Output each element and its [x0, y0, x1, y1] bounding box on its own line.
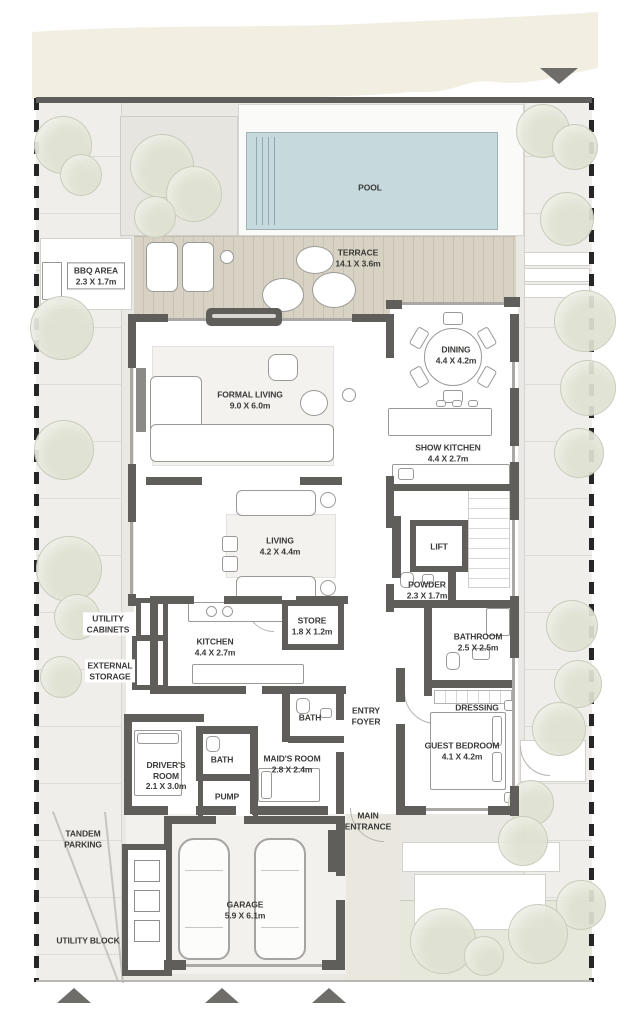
sofa: [236, 490, 316, 516]
room-dims: 4.4 X 2.7m: [415, 453, 480, 464]
room-dims: 4.1 X 4.2m: [425, 751, 500, 762]
toilet: [206, 736, 220, 752]
room-label-lift: LIFT: [430, 542, 448, 553]
wall: [282, 686, 290, 742]
room-dims: 2.1 X 3.0m: [142, 781, 190, 792]
wall: [150, 596, 158, 692]
room-label-powder: POWDER2.3 X 1.7m: [407, 579, 448, 600]
room-dims: 2.3 X 1.7m: [70, 276, 122, 287]
wall: [224, 596, 282, 604]
side-table: [222, 556, 238, 572]
room-name: UTILITY BLOCK: [56, 936, 119, 946]
room-label-entry-foyer: ENTRY FOYER: [349, 705, 383, 726]
garage-door: [186, 964, 322, 967]
label-external-storage: EXTERNAL STORAGE: [85, 659, 135, 682]
stool: [468, 400, 478, 407]
kitchen-counter: [192, 664, 304, 684]
tree: [560, 360, 616, 416]
room-dims: 14.1 X 3.6m: [335, 258, 380, 269]
room-name: SHOW KITCHEN: [415, 442, 480, 452]
pool-side-step: [524, 252, 590, 266]
room-name: DINING: [441, 344, 470, 354]
room-dims: 4.4 X 4.2m: [436, 355, 477, 366]
room-label-pump: PUMP: [215, 792, 239, 803]
cooktop-burner: [206, 606, 217, 617]
pool-side-step: [524, 268, 590, 282]
tree: [540, 192, 594, 246]
room-name: BBQ AREA: [74, 265, 118, 275]
cooktop-burner: [222, 606, 233, 617]
window-glass: [512, 446, 515, 462]
tree: [554, 428, 604, 478]
lounge-chair: [146, 242, 178, 292]
window-glass: [282, 318, 354, 321]
dining-chair: [443, 312, 463, 325]
room-dims: 2.8 X 2.4m: [263, 764, 320, 775]
tree: [60, 154, 102, 196]
tree: [464, 936, 504, 976]
tree: [30, 296, 94, 360]
room-label-bathroom: BATHROOM2.5 X 2.5m: [454, 631, 503, 652]
room-name: LIVING: [266, 535, 294, 545]
room-name: DRIVER'S ROOM: [146, 760, 185, 781]
room-name: POWDER: [408, 579, 446, 589]
tree: [554, 660, 602, 708]
room-dims: 2.5 X 2.5m: [454, 642, 503, 653]
wall: [196, 806, 236, 815]
wall: [424, 600, 512, 608]
armchair: [268, 354, 298, 381]
wall: [300, 477, 342, 485]
tree: [508, 904, 568, 964]
side-table: [342, 388, 356, 402]
wall: [488, 806, 518, 815]
room-dims: 9.0 X 6.0m: [217, 400, 283, 411]
entrance-arrow-icon: [57, 988, 91, 1003]
tv-unit: [136, 368, 146, 432]
floor-plan: POOL TERRACE14.1 X 3.6m BBQ AREA2.3 X 1.…: [0, 0, 632, 1024]
wall: [124, 806, 168, 815]
room-dims: 5.9 X 6.1m: [225, 910, 266, 921]
wall: [282, 686, 340, 694]
room-label-pool: POOL: [358, 183, 382, 194]
plot-boundary-left: [34, 98, 39, 982]
stool: [452, 400, 462, 407]
room-label-formal-living: FORMAL LIVING9.0 X 6.0m: [217, 389, 283, 410]
utility-block-room: [122, 844, 172, 976]
tree: [34, 420, 94, 480]
pool-area: [246, 132, 498, 230]
utility-shelf: [134, 920, 160, 942]
room-name: BATH: [299, 713, 322, 723]
entrance-arrow-icon: [205, 988, 239, 1003]
wall: [128, 314, 136, 368]
wall: [124, 714, 132, 814]
wall: [150, 686, 246, 694]
room-name: MAIN ENTRANCE: [345, 810, 391, 831]
tree: [36, 536, 102, 602]
label-utility-block: UTILITY BLOCK: [56, 936, 119, 947]
wall: [386, 300, 402, 309]
room-name: FORMAL LIVING: [217, 389, 283, 399]
wall: [510, 462, 519, 520]
utility-shelf: [134, 890, 160, 912]
entrance-walkway: [346, 816, 400, 982]
side-table: [320, 492, 336, 508]
room-name: ENTRY FOYER: [352, 705, 381, 726]
room-dims: 4.4 X 2.7m: [195, 647, 236, 658]
wall: [396, 668, 405, 702]
room-label-bath-maids: BATH: [299, 713, 322, 724]
room-label-maids-room: MAID'S ROOM2.8 X 2.4m: [263, 753, 320, 774]
room-label-dining: DINING4.4 X 4.2m: [436, 344, 477, 365]
room-name: POOL: [358, 183, 382, 193]
wall: [336, 900, 345, 968]
label-utility-cabinets: UTILITY CABINETS: [83, 612, 133, 635]
room-dims: 1.8 X 1.2m: [292, 626, 333, 637]
tree: [134, 196, 176, 238]
wall: [322, 960, 345, 970]
wall: [336, 752, 344, 814]
tree: [546, 600, 598, 652]
washbasin: [320, 708, 332, 718]
room-label-living: LIVING4.2 X 4.4m: [260, 535, 301, 556]
wall: [128, 594, 136, 606]
room-label-kitchen: KITCHEN4.4 X 2.7m: [195, 636, 236, 657]
room-name: TERRACE: [338, 247, 378, 257]
wall: [394, 484, 512, 491]
toilet: [446, 652, 460, 670]
wall: [164, 960, 186, 970]
wall: [396, 806, 426, 815]
wall: [296, 596, 348, 604]
room-name: STORE: [298, 615, 327, 625]
room-name: BATHROOM: [454, 631, 503, 641]
tree: [552, 124, 598, 170]
window-glass: [512, 658, 515, 786]
room-name: TANDEM PARKING: [64, 828, 102, 849]
room-label-guest-bedroom: GUEST BEDROOM4.1 X 4.2m: [425, 740, 500, 761]
window-glass: [168, 318, 208, 321]
room-label-show-kitchen: SHOW KITCHEN4.4 X 2.7m: [415, 442, 480, 463]
plot-boundary-bottom: [36, 980, 592, 982]
pool-lane-lines: [251, 137, 279, 225]
window-glass: [130, 522, 133, 596]
room-name: UTILITY CABINETS: [87, 613, 130, 634]
tree: [532, 702, 586, 756]
pillow: [261, 771, 272, 799]
room-label-terrace: TERRACE14.1 X 3.6m: [335, 247, 380, 268]
wall: [196, 774, 258, 781]
window-glass: [512, 520, 515, 596]
wall: [250, 726, 258, 814]
wall: [244, 816, 344, 824]
room-name: GUEST BEDROOM: [425, 740, 500, 750]
tree: [40, 656, 82, 698]
toilet: [296, 698, 310, 714]
window-glass: [130, 368, 133, 466]
wall: [428, 680, 512, 688]
room-name: MAID'S ROOM: [263, 753, 320, 763]
wall: [198, 726, 258, 734]
wall: [128, 464, 136, 522]
stool: [436, 400, 446, 407]
label-main-entrance: MAIN ENTRANCE: [342, 810, 394, 831]
wall: [164, 824, 172, 844]
lounge-chair: [182, 242, 214, 292]
room-name: LIFT: [430, 542, 448, 552]
wall: [510, 314, 519, 362]
side-table: [222, 536, 238, 552]
wall: [196, 726, 203, 778]
wall: [36, 97, 592, 103]
pillow: [137, 733, 179, 744]
wall: [396, 724, 405, 814]
outdoor-ottoman: [296, 246, 334, 274]
kitchen-island: [388, 408, 492, 436]
room-dims: 4.2 X 4.4m: [260, 546, 301, 557]
room-dims: 2.3 X 1.7m: [407, 590, 448, 601]
room-name: PUMP: [215, 792, 239, 802]
side-table: [320, 580, 336, 596]
tree: [554, 290, 616, 352]
wall: [504, 297, 520, 307]
wall: [146, 477, 202, 485]
armchair: [300, 390, 328, 416]
room-name: KITCHEN: [196, 636, 233, 646]
wall: [252, 806, 328, 815]
round-chair: [312, 272, 356, 308]
car: [178, 838, 230, 960]
staircase: [468, 488, 510, 588]
wall: [124, 714, 204, 722]
room-label-dressing: DRESSING: [455, 703, 499, 714]
wall: [392, 516, 401, 578]
wall: [510, 388, 519, 446]
round-chair: [262, 278, 304, 312]
room-name: BATH: [211, 755, 234, 765]
room-label-bath-drivers: BATH: [211, 755, 234, 766]
tree: [498, 816, 548, 866]
room-name: EXTERNAL STORAGE: [87, 660, 132, 681]
room-label-bbq-area: BBQ AREA2.3 X 1.7m: [67, 262, 125, 289]
window-glass: [426, 808, 488, 811]
room-name: DRESSING: [455, 703, 499, 713]
top-decorative-band: [28, 6, 604, 102]
label-tandem-parking: TANDEM PARKING: [61, 828, 105, 849]
room-label-garage: GARAGE5.9 X 6.1m: [225, 899, 266, 920]
north-arrow-icon: [540, 68, 578, 84]
room-label-drivers-room: DRIVER'S ROOM2.1 X 3.0m: [142, 760, 190, 792]
utility-shelf: [134, 860, 160, 882]
wall: [386, 316, 394, 358]
sliding-door: [206, 308, 282, 326]
room-label-store: STORE1.8 X 1.2m: [292, 615, 333, 636]
sink: [398, 468, 414, 480]
side-table: [220, 250, 234, 264]
wall: [164, 816, 216, 824]
bbq-counter: [42, 262, 62, 300]
room-name: GARAGE: [227, 899, 264, 909]
window-glass: [512, 362, 515, 388]
wall: [288, 736, 344, 743]
window-glass: [402, 302, 506, 305]
entrance-arrow-icon: [312, 988, 346, 1003]
sofa: [150, 424, 334, 462]
